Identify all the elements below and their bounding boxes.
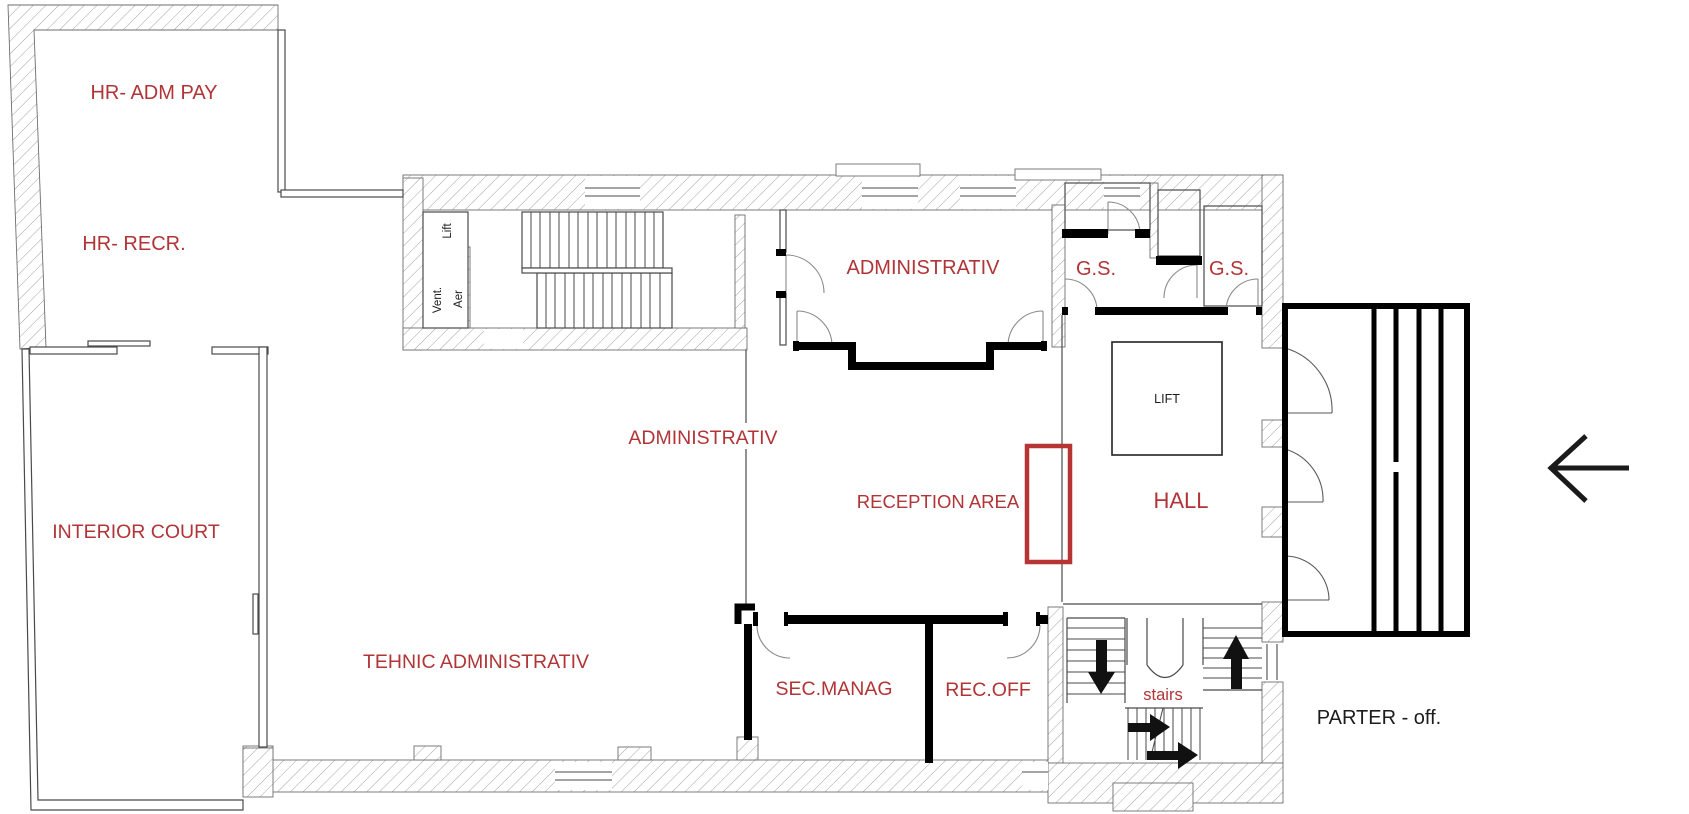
room-label-reception-area: RECEPTION AREA [857, 491, 1020, 512]
floor-label-parter: PARTER - off. [1317, 707, 1441, 729]
room-label-gs-left: G.S. [1076, 258, 1116, 280]
room-label-administrativ-corridor: ADMINISTRATIV [628, 427, 777, 449]
room-label-tehnic-administrativ: TEHNIC ADMINISTRATIV [363, 651, 589, 673]
aer-label: Aer [453, 290, 465, 308]
arrow-up-icon [1223, 635, 1249, 689]
wall-hr-top-left [8, 5, 278, 349]
lift-box-label: LIFT [1154, 392, 1180, 406]
vent-label: Vent. [432, 287, 444, 313]
room-label-hr-recr: HR- RECR. [82, 233, 185, 255]
thin-lines [531, 212, 1262, 760]
entrance-terrace [1285, 306, 1467, 634]
room-label-hr-adm-pay: HR- ADM PAY [90, 82, 217, 104]
room-label-gs-right: G.S. [1209, 258, 1249, 280]
reception-desk [1027, 446, 1070, 562]
arrow-down-icon [1088, 640, 1115, 694]
room-label-stairs: stairs [1143, 686, 1182, 704]
entrance-arrow-icon [1551, 436, 1629, 501]
room-label-interior-court: INTERIOR COURT [52, 521, 220, 543]
thin-walls [22, 30, 1262, 810]
hatched-walls [8, 5, 1283, 811]
room-label-administrativ-room: ADMINISTRATIV [847, 257, 1001, 279]
floor-plan-page: HR- ADM PAY HR- RECR. INTERIOR COURT TEH… [0, 0, 1689, 814]
room-label-hall: HALL [1153, 488, 1208, 513]
room-label-sec-manag: SEC.MANAG [775, 678, 892, 700]
room-label-rec-off: REC.OFF [945, 679, 1031, 701]
floor-plan-drawing: HR- ADM PAY HR- RECR. INTERIOR COURT TEH… [0, 0, 1689, 814]
lift-small-label: Lift [442, 223, 454, 239]
